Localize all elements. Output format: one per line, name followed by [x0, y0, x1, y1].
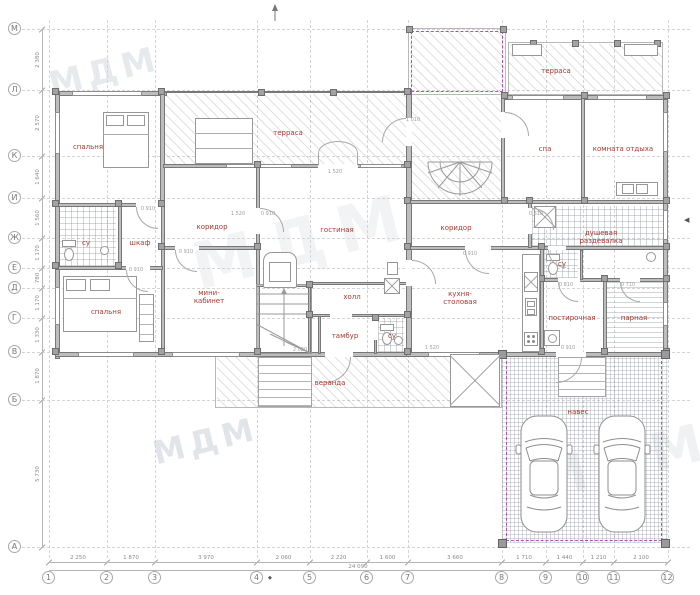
- wall: [406, 246, 667, 250]
- axis-letter-bubble: А: [8, 540, 21, 553]
- terrace-bench: [624, 44, 658, 56]
- room-label-text: коридор: [196, 223, 227, 231]
- axis-letter-bubble: Г: [8, 311, 21, 324]
- dimension-value: 1 560: [35, 210, 41, 226]
- floor-plan-sheet: МДМ МДМ МДМ МДМ ◀ ◆: [0, 0, 700, 595]
- counter-sink: [622, 184, 634, 194]
- fridge: [524, 272, 538, 292]
- toilet-tank: [380, 324, 394, 331]
- room-label-closet: шкаф: [130, 239, 151, 247]
- grid-line-horizontal: [22, 29, 690, 30]
- window: [597, 95, 647, 100]
- room-label-kitchen-dining: кухня-столовая: [443, 290, 477, 306]
- stove-burner: [532, 335, 535, 338]
- log-post: [581, 92, 588, 99]
- log-post: [538, 243, 545, 250]
- opening-dimension: 0 910: [261, 211, 275, 217]
- pillow: [90, 279, 110, 291]
- window: [78, 352, 134, 357]
- room-label-text: холл: [343, 293, 360, 301]
- room-label-laundry: постирочная: [548, 314, 595, 322]
- terrace-bench: [512, 44, 542, 56]
- window: [663, 112, 668, 152]
- window: [663, 302, 668, 326]
- dimension-value: 2 250: [70, 555, 86, 561]
- log-post: [306, 311, 313, 318]
- door-swing: [505, 112, 529, 136]
- dimension-value: 1 330: [35, 327, 41, 343]
- axis-letter-bubble: Б: [8, 393, 21, 406]
- room-label-lounge: комната отдыха: [593, 145, 653, 153]
- dimension-value: 5 730: [35, 466, 41, 482]
- stove: [524, 332, 538, 346]
- axis-number-bubble: 7: [401, 571, 414, 584]
- log-post: [663, 197, 670, 204]
- log-post: [404, 311, 411, 318]
- room-label-text: су: [388, 332, 396, 340]
- room-label-text: душевая: [579, 229, 622, 237]
- carport-post: [498, 539, 507, 548]
- room-label-bedroom-top: спальня: [73, 143, 103, 151]
- room-label-text: комната отдыха: [593, 145, 653, 153]
- log-post: [115, 200, 122, 207]
- wall: [603, 278, 607, 356]
- log-post: [601, 348, 608, 355]
- log-post: [601, 275, 608, 282]
- armchair-seat: [269, 262, 291, 282]
- axis-number-bubble: 3: [148, 571, 161, 584]
- axis-letter-bubble: Д: [8, 281, 21, 294]
- log-post: [404, 348, 411, 355]
- opening-dimension: 0 910: [561, 345, 575, 351]
- room-label-text: су: [558, 260, 566, 268]
- roof-overhang-dashed: [411, 31, 503, 92]
- carport-post: [661, 350, 670, 359]
- axis-letter-bubble: Ж: [8, 231, 21, 244]
- door-opening: [330, 314, 352, 317]
- log-post: [581, 197, 588, 204]
- log-post: [306, 281, 313, 288]
- opening-dimension: 0 910: [141, 206, 155, 212]
- dimension-total-value: 24 090: [348, 564, 367, 570]
- dimension-value: 1 640: [35, 169, 41, 185]
- fan-staircase: [424, 160, 496, 198]
- log-post: [404, 161, 411, 168]
- dimension-value: 1 870: [123, 555, 139, 561]
- axis-letter-bubble: М: [8, 22, 21, 35]
- window: [72, 91, 142, 96]
- washing-machine-door: [548, 334, 557, 343]
- dimension-value: 2 220: [331, 555, 347, 561]
- dimension-value: 1 870: [35, 368, 41, 384]
- window: [172, 352, 240, 357]
- opening-dimension: 1 520: [231, 211, 245, 217]
- log-post: [254, 243, 261, 250]
- dimension-value: 3 970: [198, 555, 214, 561]
- log-post: [330, 89, 337, 96]
- bed-line: [103, 134, 149, 135]
- window: [55, 112, 60, 154]
- cars-top-view: [510, 412, 670, 538]
- log-post: [254, 348, 261, 355]
- car-right: [594, 416, 650, 532]
- dimension-value: 1 210: [591, 555, 607, 561]
- flue-duct: [387, 262, 398, 275]
- room-label-wc-left: су: [82, 239, 90, 247]
- dimension-value: 2 380: [35, 52, 41, 68]
- room-label-veranda: веранда: [315, 379, 346, 387]
- axis-number-bubble: 4: [250, 571, 263, 584]
- log-post: [404, 243, 411, 250]
- dimension-value: 780: [35, 273, 41, 284]
- room-label-text: постирочная: [548, 314, 595, 322]
- dimension-value: 2 100: [633, 555, 649, 561]
- log-post: [404, 88, 411, 95]
- door-opening: [374, 320, 377, 340]
- room-label-bedroom-bottom: спальня: [91, 308, 121, 316]
- log-post: [501, 92, 508, 99]
- room-label-wc-right: су: [558, 260, 566, 268]
- window: [55, 287, 60, 325]
- room-label-living-room: гостиная: [320, 226, 354, 234]
- log-post: [115, 262, 122, 269]
- axis-number-bubble: 12: [661, 571, 674, 584]
- opening-dimension: 1 010: [406, 117, 420, 123]
- stove-burner: [532, 340, 535, 343]
- pillow: [127, 115, 145, 126]
- dimension-line-bottom-total: [49, 570, 668, 571]
- axis-letter-bubble: К: [8, 149, 21, 162]
- wall: [160, 93, 165, 205]
- room-label-text: шкаф: [130, 239, 151, 247]
- wall: [165, 91, 408, 93]
- room-label-text: су: [82, 239, 90, 247]
- window: [663, 210, 668, 240]
- veranda-ramp: [450, 354, 500, 407]
- log-post: [663, 243, 670, 250]
- toilet-tank: [62, 240, 76, 247]
- axis-number-bubble: 1: [42, 571, 55, 584]
- room-label-text: столовая: [443, 298, 477, 306]
- dimension-value: 1 440: [557, 555, 573, 561]
- axis-letter-bubble: Л: [8, 83, 21, 96]
- wall: [406, 200, 668, 204]
- benchmark-icon: ◆: [268, 575, 272, 581]
- door-swing: [412, 260, 436, 284]
- washbasin: [646, 252, 656, 262]
- room-label-text: веранда: [315, 379, 346, 387]
- counter-sink: [636, 184, 648, 194]
- room-label-terrace-top-right: терраса: [541, 67, 571, 75]
- room-label-mini-office: мини-кабинет: [194, 289, 224, 305]
- axis-number-bubble: 8: [495, 571, 508, 584]
- wall: [581, 95, 585, 204]
- room-label-terrace-main: терраса: [273, 129, 303, 137]
- opening-dimension: 1 520: [425, 345, 439, 351]
- room-label-shower-dressing: душеваяраздевалка: [579, 229, 622, 245]
- chimney-flue: [384, 278, 400, 294]
- room-label-steam-room: парная: [621, 314, 647, 322]
- room-label-vestibule: тамбур: [332, 332, 359, 340]
- opening-dimension: 0 710: [621, 282, 635, 288]
- wall: [118, 203, 122, 270]
- opening-dimension: 1 520: [328, 169, 342, 175]
- door-swing: [318, 141, 358, 165]
- dimension-value: 1 170: [35, 245, 41, 261]
- log-post: [254, 161, 261, 168]
- log-post: [372, 314, 379, 321]
- sink-bowl: [527, 309, 535, 315]
- axis-number-bubble: 9: [539, 571, 552, 584]
- washbasin: [100, 246, 109, 255]
- room-label-text: спальня: [91, 308, 121, 316]
- pillow: [106, 115, 124, 126]
- log-post: [404, 197, 411, 204]
- table-line: [195, 148, 253, 149]
- grid-line-horizontal: [22, 198, 690, 199]
- grid-line-vertical: [49, 20, 50, 558]
- dimension-value: 2 060: [276, 555, 292, 561]
- dimension-line-left: [42, 29, 43, 547]
- log-post: [614, 40, 621, 47]
- grid-line-horizontal: [22, 547, 690, 548]
- log-post: [663, 92, 670, 99]
- room-label-corridor-left: коридор: [196, 223, 227, 231]
- log-post: [258, 89, 265, 96]
- axis-number-bubble: 5: [303, 571, 316, 584]
- room-label-wc-center: су: [388, 332, 396, 340]
- log-post: [500, 26, 507, 33]
- sink-bowl: [527, 301, 535, 307]
- log-post: [52, 88, 59, 95]
- room-label-text: терраса: [273, 129, 303, 137]
- room-label-text: раздевалка: [579, 237, 622, 245]
- dimension-value: 1 600: [380, 555, 396, 561]
- watermark-logo: МДМ: [149, 410, 262, 473]
- grid-line-vertical: [155, 20, 156, 558]
- log-post: [526, 197, 533, 204]
- dimension-value: 3 660: [447, 555, 463, 561]
- room-label-text: навес: [567, 408, 588, 416]
- room-label-text: гостиная: [320, 226, 354, 234]
- log-post: [158, 348, 165, 355]
- axis-number-bubble: 10: [576, 571, 589, 584]
- car-left: [516, 416, 572, 532]
- stove-burner: [527, 340, 530, 343]
- room-label-text: тамбур: [332, 332, 359, 340]
- log-post: [501, 197, 508, 204]
- axis-number-bubble: 2: [100, 571, 113, 584]
- room-label-text: спальня: [73, 143, 103, 151]
- wall: [580, 250, 583, 280]
- axis-letter-bubble: В: [8, 345, 21, 358]
- log-post: [52, 348, 59, 355]
- wall: [310, 314, 410, 317]
- room-label-text: терраса: [541, 67, 571, 75]
- opening-dimension: 0 810: [559, 282, 573, 288]
- section-marker-icon: ◀: [684, 216, 689, 224]
- opening-dimension: 0 910: [463, 251, 477, 257]
- north-arrow-icon: [268, 4, 282, 22]
- room-label-text: спа: [539, 145, 552, 153]
- window: [512, 95, 564, 100]
- porch-steps: [258, 357, 312, 407]
- wall: [161, 203, 165, 357]
- dimension-value: 1 170: [35, 295, 41, 311]
- log-post: [158, 88, 165, 95]
- table-line: [195, 133, 253, 134]
- opening-dimension: 0 810: [529, 211, 543, 217]
- bed-line: [63, 298, 137, 299]
- room-label-text: парная: [621, 314, 647, 322]
- axis-number-bubble: 6: [360, 571, 373, 584]
- room-label-hall: холл: [343, 293, 360, 301]
- log-post: [52, 262, 59, 269]
- main-staircase: [256, 284, 312, 354]
- log-post: [663, 275, 670, 282]
- wall: [318, 316, 321, 354]
- dimension-value: 2 570: [35, 115, 41, 131]
- room-label-text: коридор: [440, 224, 471, 232]
- log-post: [158, 243, 165, 250]
- pillow: [66, 279, 86, 291]
- axis-letter-bubble: И: [8, 191, 21, 204]
- opening-dimension: 2 020: [293, 347, 307, 353]
- wardrobe-shelf: [139, 294, 154, 342]
- carport-post: [661, 539, 670, 548]
- room-label-spa: спа: [539, 145, 552, 153]
- dimension-value: 1 710: [516, 555, 532, 561]
- room-label-carport: навес: [567, 408, 588, 416]
- opening-dimension: 0 910: [179, 249, 193, 255]
- room-label-text: кухня-: [443, 290, 477, 298]
- room-label-text: мини-: [194, 289, 224, 297]
- room-label-text: кабинет: [194, 297, 224, 305]
- log-post: [572, 40, 579, 47]
- log-post: [52, 200, 59, 207]
- terrace-table: [195, 118, 253, 164]
- axis-number-bubble: 11: [607, 571, 620, 584]
- window: [360, 164, 402, 168]
- log-post: [406, 26, 413, 33]
- dimension-line-bottom: [49, 562, 668, 563]
- toilet-bowl: [64, 248, 74, 261]
- stove-burner: [527, 335, 530, 338]
- log-post: [158, 200, 165, 207]
- opening-dimension: 0 910: [129, 267, 143, 273]
- room-label-corridor-right: коридор: [440, 224, 471, 232]
- axis-letter-bubble: Е: [8, 261, 21, 274]
